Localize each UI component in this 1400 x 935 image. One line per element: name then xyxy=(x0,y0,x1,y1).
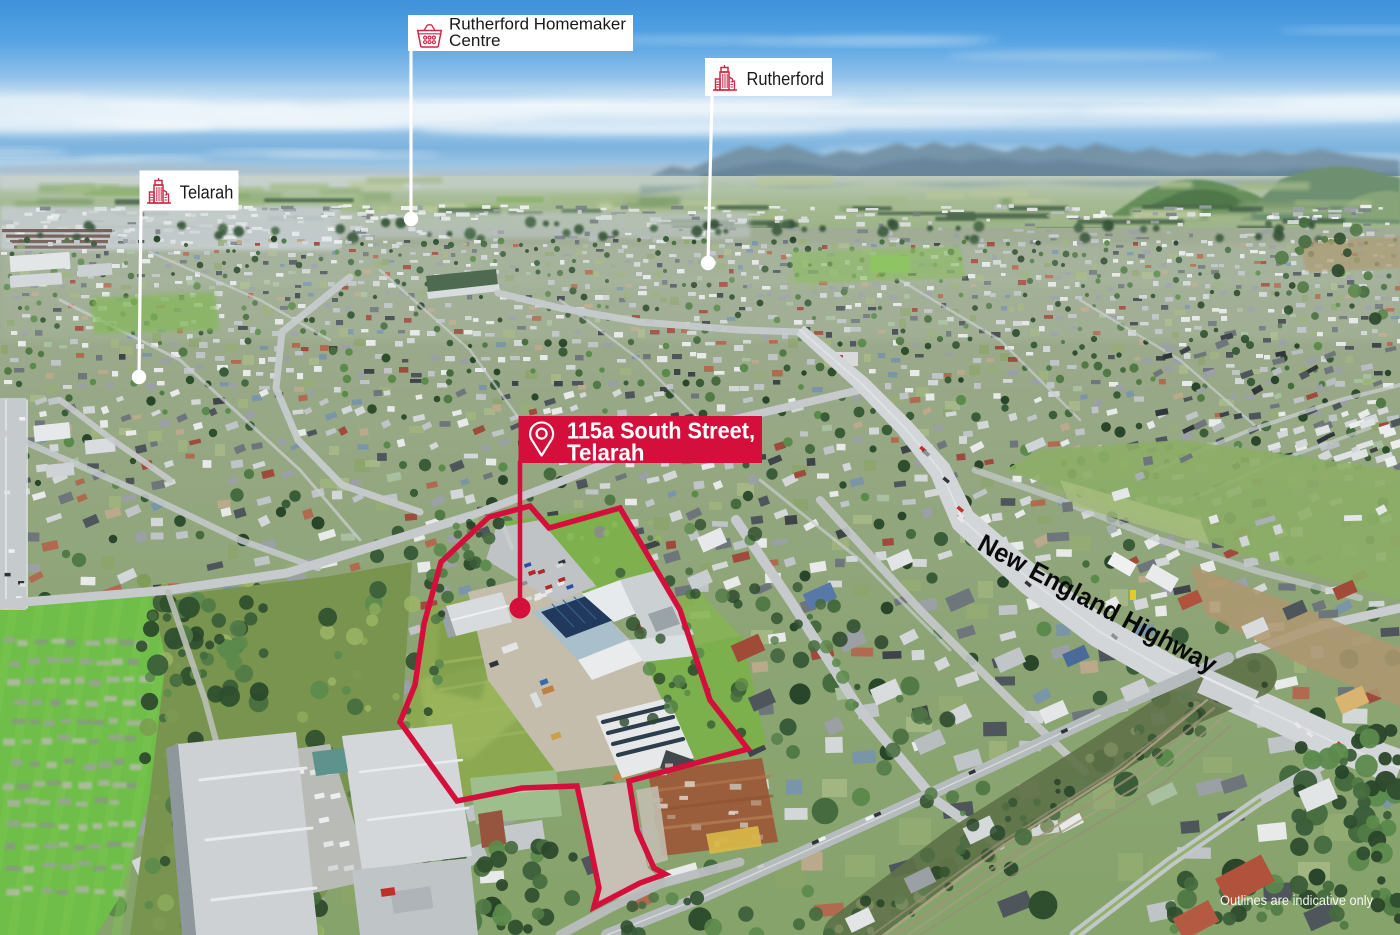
svg-text:Rutherford: Rutherford xyxy=(747,69,825,89)
svg-text:Telarah: Telarah xyxy=(567,440,645,466)
svg-text:Rutherford Homemaker: Rutherford Homemaker xyxy=(449,16,627,34)
svg-text:Telarah: Telarah xyxy=(180,182,234,203)
svg-text:Outlines are indicative only: Outlines are indicative only xyxy=(1220,892,1373,908)
svg-text:Centre: Centre xyxy=(449,32,501,50)
